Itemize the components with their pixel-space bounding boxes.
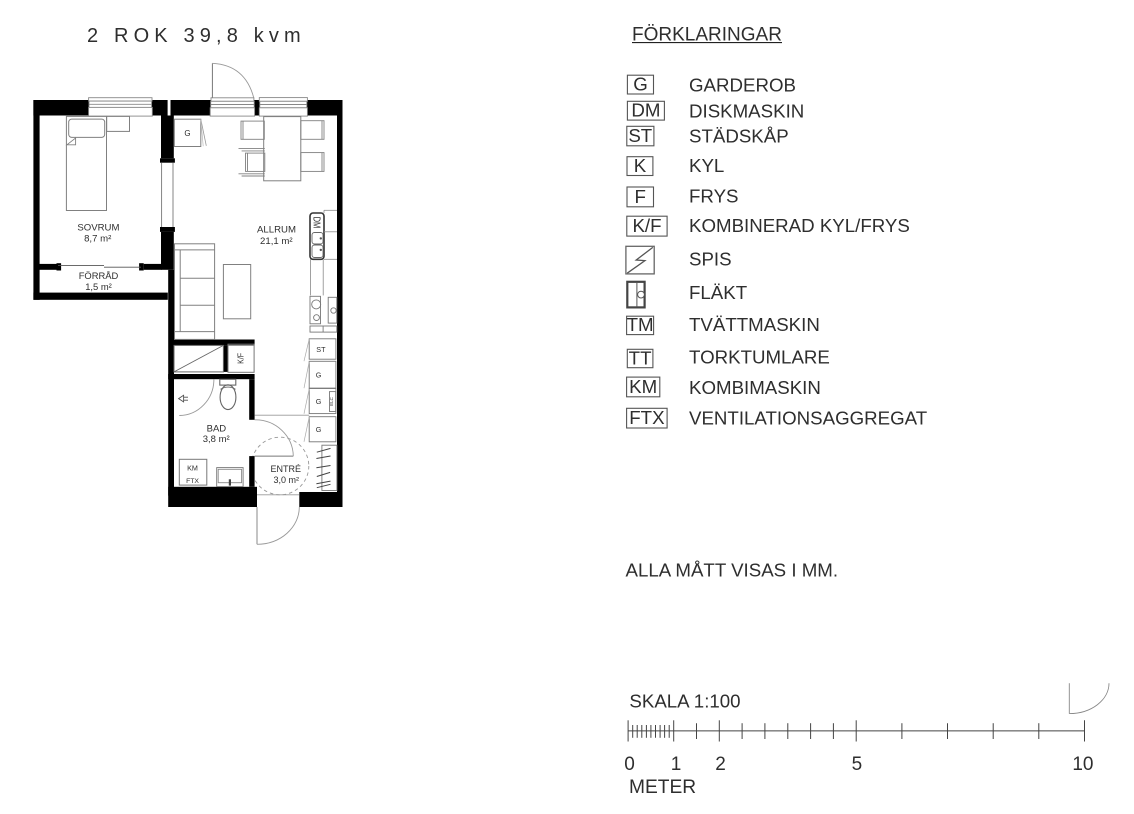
svg-text:0: 0	[624, 754, 635, 775]
svg-text:ALLRUM: ALLRUM	[257, 224, 296, 235]
svg-text:KM: KM	[629, 376, 657, 397]
svg-text:SPIS: SPIS	[689, 249, 732, 270]
svg-text:KOMBIMASKIN: KOMBIMASKIN	[689, 377, 821, 398]
svg-text:K: K	[634, 155, 647, 176]
svg-text:FTX: FTX	[186, 478, 199, 485]
svg-text:G: G	[633, 73, 648, 94]
svg-text:DISKMASKIN: DISKMASKIN	[689, 100, 804, 121]
svg-text:KYL: KYL	[689, 155, 724, 176]
svg-text:5: 5	[852, 754, 863, 775]
svg-text:DM: DM	[631, 100, 660, 121]
svg-text:FTX: FTX	[629, 407, 665, 428]
svg-text:1: 1	[671, 754, 682, 775]
svg-text:GARDEROB: GARDEROB	[689, 74, 796, 95]
svg-text:G: G	[316, 371, 322, 380]
svg-text:KM: KM	[187, 463, 198, 472]
svg-text:G: G	[316, 397, 322, 406]
svg-text:ELC: ELC	[329, 396, 334, 406]
svg-text:ENTRÉ: ENTRÉ	[271, 464, 302, 474]
svg-text:G: G	[316, 425, 322, 434]
svg-text:METER: METER	[629, 777, 696, 798]
svg-text:K/F: K/F	[236, 353, 246, 364]
svg-text:2 ROK 39,8 kvm: 2 ROK 39,8 kvm	[87, 25, 306, 47]
svg-text:KOMBINERAD KYL/FRYS: KOMBINERAD KYL/FRYS	[689, 215, 910, 236]
svg-text:ST: ST	[628, 125, 652, 146]
svg-text:ALLA MÅTT VISAS I MM.: ALLA MÅTT VISAS I MM.	[626, 560, 839, 581]
svg-text:VENTILATIONSAGGREGAT: VENTILATIONSAGGREGAT	[689, 408, 927, 429]
svg-text:2: 2	[715, 754, 726, 775]
svg-text:1,5 m²: 1,5 m²	[85, 281, 112, 292]
svg-text:G: G	[184, 129, 190, 138]
svg-text:FRYS: FRYS	[689, 186, 739, 207]
svg-text:F: F	[634, 186, 645, 207]
svg-text:SKALA 1:100: SKALA 1:100	[629, 691, 740, 712]
svg-text:10: 10	[1072, 754, 1093, 775]
svg-text:K/F: K/F	[632, 215, 661, 236]
svg-text:TT: TT	[629, 347, 652, 368]
svg-text:FÖRRÅD: FÖRRÅD	[79, 270, 119, 281]
svg-text:3,8 m²: 3,8 m²	[203, 434, 230, 445]
svg-text:TVÄTTMASKIN: TVÄTTMASKIN	[689, 314, 820, 335]
svg-text:TORKTUMLARE: TORKTUMLARE	[689, 347, 830, 368]
svg-text:BAD: BAD	[207, 423, 227, 434]
svg-text:8,7 m²: 8,7 m²	[84, 234, 112, 245]
svg-text:TM: TM	[627, 314, 654, 335]
svg-text:FLÄKT: FLÄKT	[689, 282, 747, 303]
svg-text:ST: ST	[316, 345, 326, 354]
svg-text:STÄDSKÅP: STÄDSKÅP	[689, 126, 789, 147]
svg-text:DM: DM	[311, 217, 322, 229]
svg-text:3,0 m²: 3,0 m²	[273, 475, 299, 485]
svg-text:SOVRUM: SOVRUM	[77, 222, 119, 233]
svg-text:21,1 m²: 21,1 m²	[260, 236, 293, 247]
